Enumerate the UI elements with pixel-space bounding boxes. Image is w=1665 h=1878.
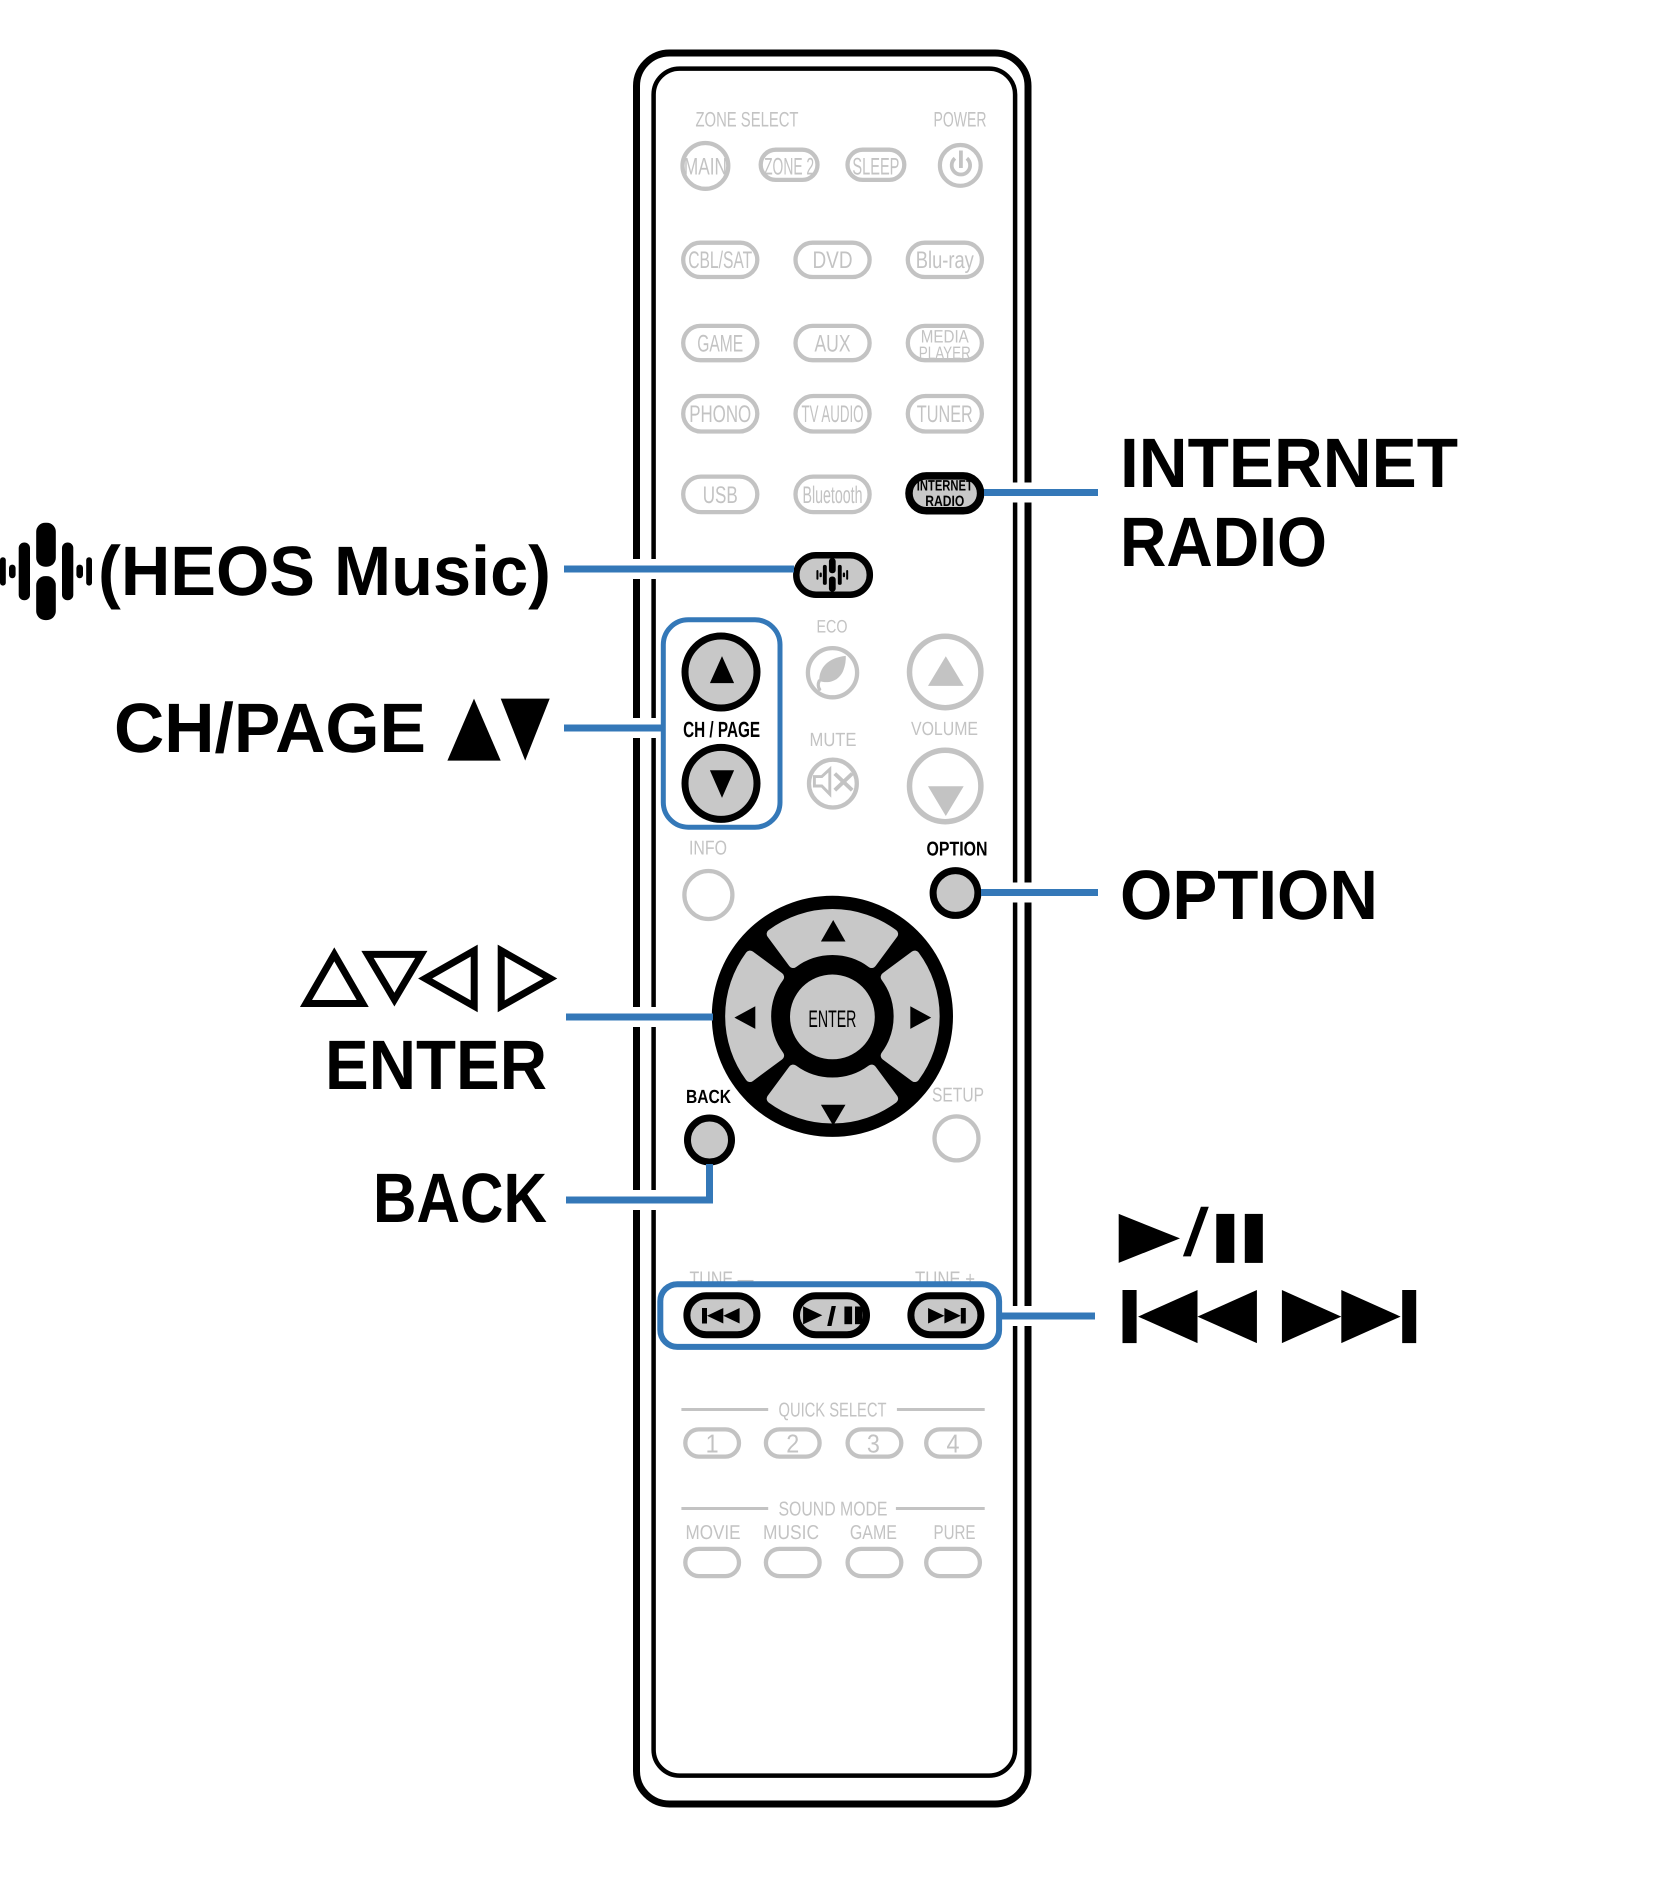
svg-text:2: 2 (786, 1428, 799, 1458)
svg-text:RADIO: RADIO (925, 493, 964, 510)
svg-text:ZONE SELECT: ZONE SELECT (696, 109, 799, 132)
svg-text:PHONO: PHONO (689, 401, 751, 428)
svg-text:GAME: GAME (697, 330, 743, 357)
svg-text:POWER: POWER (934, 109, 987, 132)
svg-text:OPTION: OPTION (927, 838, 988, 860)
svg-text:VOLUME: VOLUME (911, 719, 978, 740)
svg-text:CH / PAGE: CH / PAGE (683, 717, 760, 742)
svg-text:(HEOS Music): (HEOS Music) (98, 532, 551, 610)
svg-text:Blu-ray: Blu-ray (916, 247, 974, 274)
svg-text:DVD: DVD (813, 247, 853, 274)
svg-text:MAIN: MAIN (684, 153, 727, 180)
svg-text:3: 3 (867, 1428, 880, 1458)
svg-text:INFO: INFO (689, 837, 727, 859)
svg-text:PLAYER: PLAYER (919, 343, 971, 363)
svg-text:INTERNET: INTERNET (1120, 424, 1458, 502)
svg-text:GAME: GAME (850, 1522, 897, 1544)
svg-text:OPTION: OPTION (1120, 856, 1378, 934)
svg-text:CH/PAGE: CH/PAGE (114, 689, 426, 767)
svg-text:TV AUDIO: TV AUDIO (802, 401, 864, 428)
svg-text:PURE: PURE (934, 1522, 976, 1544)
svg-text:ZONE 2: ZONE 2 (764, 153, 814, 180)
svg-text:BACK: BACK (686, 1087, 731, 1108)
svg-text:RADIO: RADIO (1120, 503, 1327, 581)
svg-text:USB: USB (703, 482, 738, 509)
svg-text:SOUND MODE: SOUND MODE (779, 1498, 888, 1520)
svg-text:TUNER: TUNER (917, 401, 973, 428)
svg-text:MUSIC: MUSIC (763, 1522, 819, 1544)
svg-text:AUX: AUX (815, 330, 851, 357)
svg-text:QUICK SELECT: QUICK SELECT (779, 1399, 887, 1421)
svg-text:Bluetooth: Bluetooth (803, 482, 863, 509)
svg-text:1: 1 (706, 1428, 719, 1458)
svg-text:BACK: BACK (373, 1159, 547, 1237)
svg-text:CBL/SAT: CBL/SAT (688, 247, 752, 274)
svg-text:ENTER: ENTER (325, 1026, 547, 1104)
svg-text:MUTE: MUTE (810, 730, 857, 751)
svg-text:ECO: ECO (817, 616, 848, 636)
svg-text:SLEEP: SLEEP (852, 153, 899, 180)
svg-text:SETUP: SETUP (932, 1085, 984, 1107)
svg-text:4: 4 (947, 1428, 960, 1458)
svg-text:MOVIE: MOVIE (686, 1522, 741, 1544)
svg-text:ENTER: ENTER (808, 1006, 856, 1033)
